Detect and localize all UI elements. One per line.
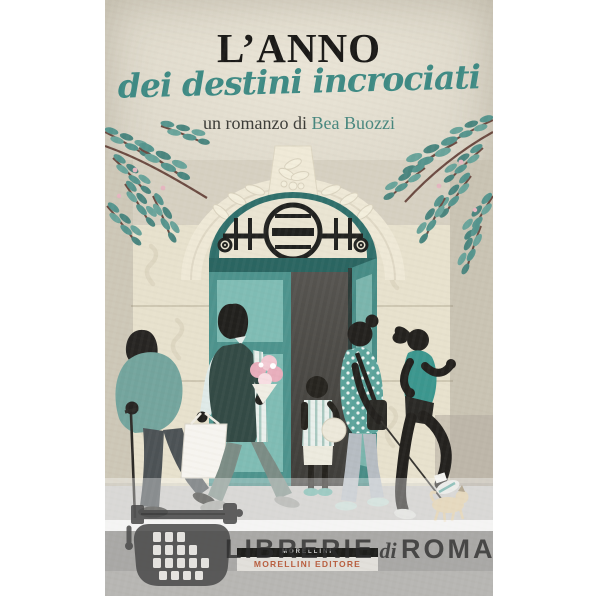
publisher-tagline: MORELLINI EDITORE bbox=[237, 557, 378, 571]
publisher-name: MORELLINI bbox=[237, 548, 378, 557]
ball bbox=[322, 418, 346, 442]
book-cover-image: L’ANNO dei destini incrociati un romanzo… bbox=[0, 0, 600, 600]
author-name: Bea Buozzi bbox=[312, 113, 395, 133]
cover-artwork: L’ANNO dei destini incrociati un romanzo… bbox=[105, 0, 493, 596]
publisher-logo: MORELLINI MORELLINI EDITORE bbox=[237, 548, 378, 571]
byline: un romanzo di Bea Buozzi bbox=[105, 113, 493, 134]
byline-prefix: un romanzo di bbox=[203, 113, 311, 133]
